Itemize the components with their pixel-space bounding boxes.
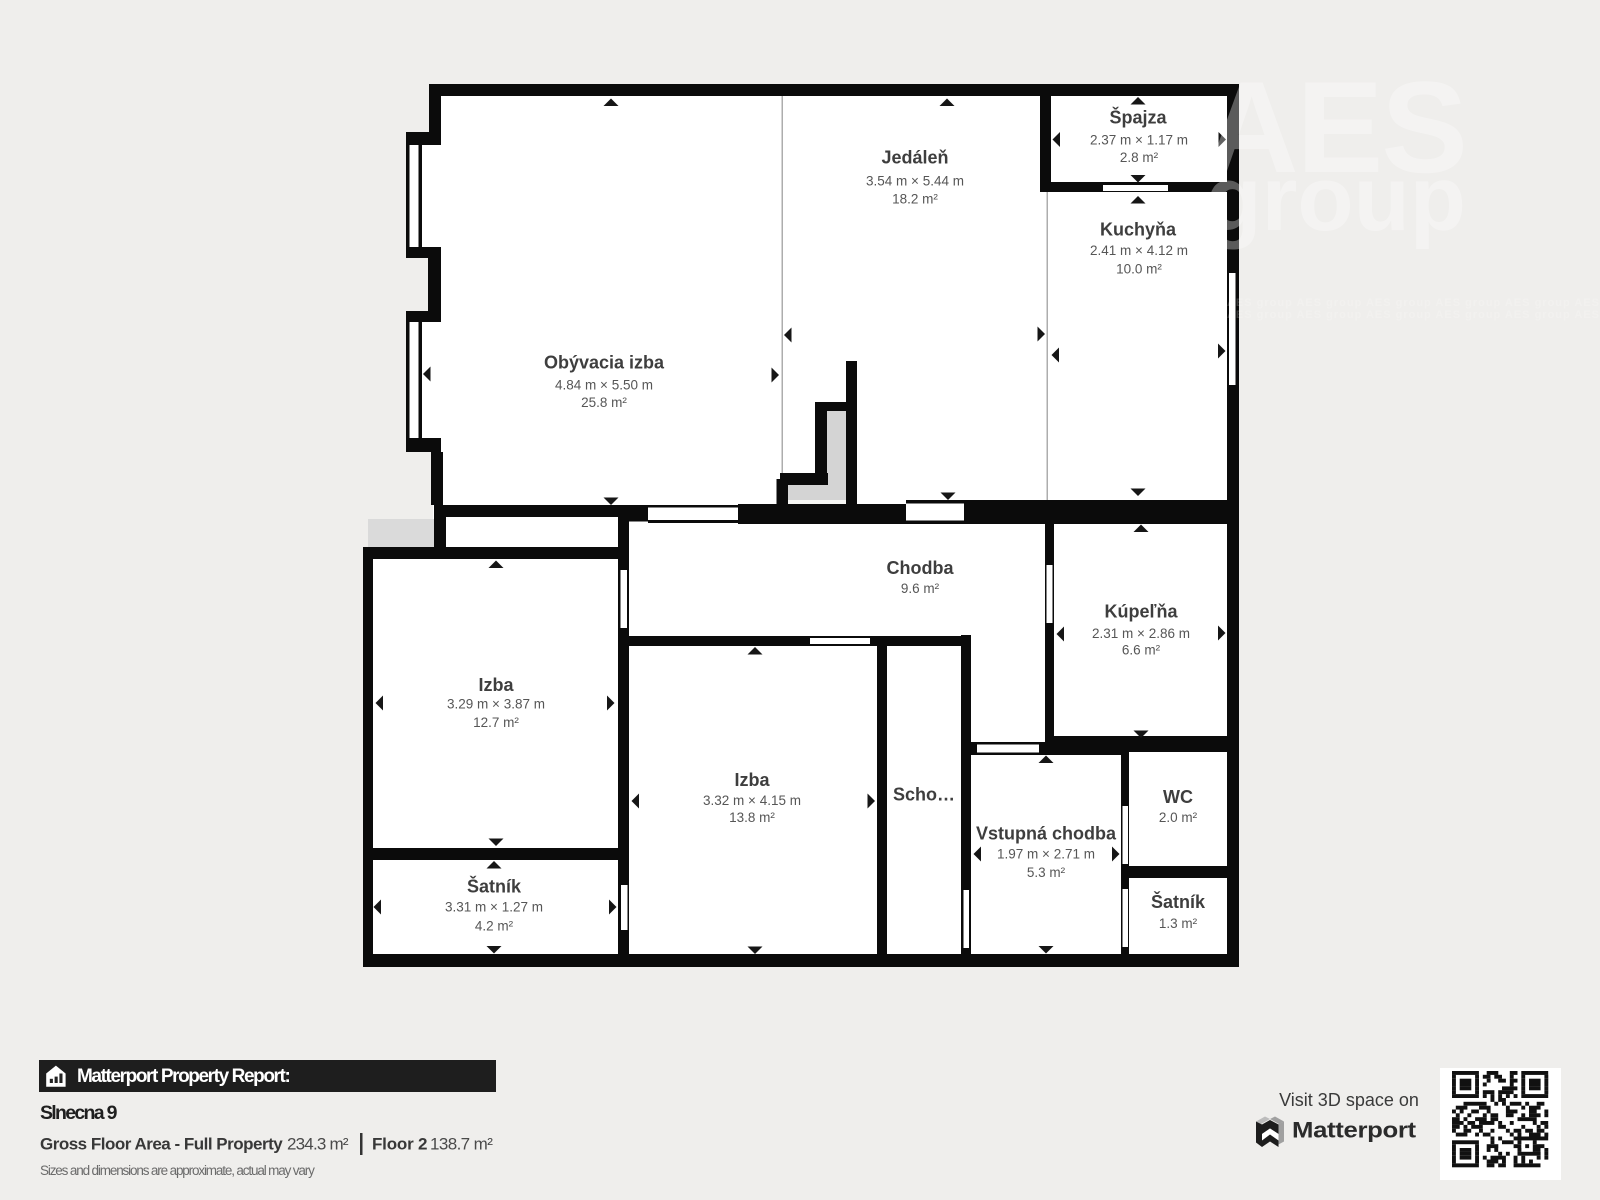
svg-text:2.31 m × 2.86 m: 2.31 m × 2.86 m (1092, 626, 1190, 641)
svg-text:Obývacia izba: Obývacia izba (544, 352, 665, 372)
svg-text:Slnecna 9: Slnecna 9 (40, 1102, 118, 1124)
svg-text:Izba: Izba (478, 675, 514, 695)
svg-text:group: group (1205, 148, 1466, 250)
svg-text:13.8 m²: 13.8 m² (729, 810, 775, 825)
svg-text:138.7 m²: 138.7 m² (430, 1135, 493, 1154)
svg-text:3.32 m × 4.15 m: 3.32 m × 4.15 m (703, 793, 801, 808)
svg-text:Gross Floor Area - Full Proper: Gross Floor Area - Full Property (40, 1135, 283, 1154)
svg-text:Floor 2: Floor 2 (372, 1135, 427, 1154)
svg-text:5.3 m²: 5.3 m² (1027, 865, 1066, 880)
svg-text:3.31 m × 1.27 m: 3.31 m × 1.27 m (445, 899, 543, 914)
svg-text:12.7 m²: 12.7 m² (473, 715, 519, 730)
svg-text:6.6 m²: 6.6 m² (1122, 642, 1161, 657)
svg-text:Sizes and dimensions are appro: Sizes and dimensions are approximate, ac… (40, 1163, 315, 1178)
svg-text:AES group AES group AES group: AES group AES group AES group AES group … (1227, 297, 1600, 309)
svg-text:Matterport Property Report:: Matterport Property Report: (77, 1066, 289, 1087)
svg-text:3.54 m × 5.44 m: 3.54 m × 5.44 m (866, 173, 964, 188)
svg-text:Matterport: Matterport (1292, 1118, 1416, 1143)
svg-text:2.41 m × 4.12 m: 2.41 m × 4.12 m (1090, 243, 1188, 258)
svg-text:25.8 m²: 25.8 m² (581, 395, 627, 410)
svg-text:Chodba: Chodba (887, 558, 955, 578)
svg-text:Kuchyňa: Kuchyňa (1100, 219, 1177, 239)
svg-text:Šatník: Šatník (1151, 891, 1206, 912)
svg-text:234.3 m²: 234.3 m² (287, 1135, 349, 1154)
svg-text:Špajza: Špajza (1109, 106, 1167, 127)
svg-text:1.97 m × 2.71 m: 1.97 m × 2.71 m (997, 846, 1095, 861)
svg-text:Šatník: Šatník (467, 875, 522, 896)
svg-text:Izba: Izba (734, 770, 770, 790)
svg-text:Kúpeľňa: Kúpeľňa (1105, 601, 1179, 621)
svg-text:Vstupná chodba: Vstupná chodba (976, 823, 1117, 843)
svg-text:2.37 m × 1.17 m: 2.37 m × 1.17 m (1090, 132, 1188, 147)
svg-text:4.84 m × 5.50 m: 4.84 m × 5.50 m (555, 377, 653, 392)
svg-text:4.2 m²: 4.2 m² (475, 918, 514, 933)
svg-text:1.3 m²: 1.3 m² (1159, 916, 1198, 931)
svg-text:AES group AES group AES group: AES group AES group AES group AES group … (1227, 309, 1600, 321)
svg-text:Scho…: Scho… (893, 784, 955, 804)
svg-text:18.2 m²: 18.2 m² (892, 191, 938, 206)
svg-text:10.0 m²: 10.0 m² (1116, 261, 1162, 276)
svg-text:2.0 m²: 2.0 m² (1159, 810, 1198, 825)
svg-text:Visit 3D space on: Visit 3D space on (1279, 1090, 1419, 1110)
svg-text:Jedáleň: Jedáleň (881, 147, 948, 167)
svg-text:2.8 m²: 2.8 m² (1120, 150, 1159, 165)
svg-text:3.29 m × 3.87 m: 3.29 m × 3.87 m (447, 696, 545, 711)
svg-text:9.6 m²: 9.6 m² (901, 581, 940, 596)
svg-text:WC: WC (1163, 787, 1193, 807)
